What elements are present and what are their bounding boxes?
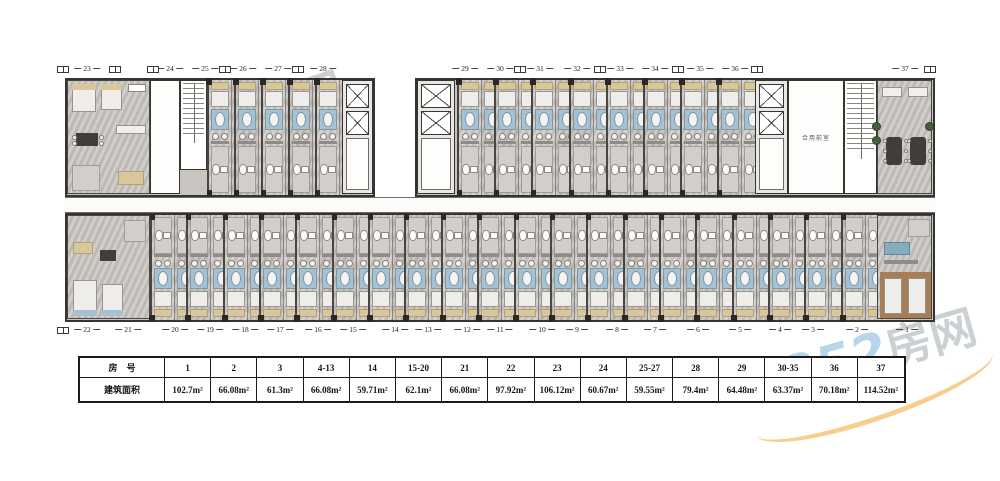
tick-dash [659,329,666,330]
sink-icon [454,232,462,239]
chair-icon [700,260,707,267]
corridor-pier [368,214,373,220]
bed-pillow [627,309,645,317]
chair-icon [320,133,327,140]
desk-table [408,254,426,257]
wall-pier [642,78,648,85]
tub-icon [703,271,713,286]
chair-icon [664,260,671,267]
unit-half [443,215,465,320]
tick-dash [181,329,188,330]
bathroom [647,146,665,193]
desk-table [554,254,572,257]
bath-mat [535,109,553,130]
toilet-icon [685,164,693,175]
bed [721,91,739,107]
tick-dash [471,68,478,69]
chair-icon [722,133,729,140]
bathroom [461,146,479,193]
shared-lobby-room: 合用前室 [788,80,844,194]
tub-icon [667,271,677,286]
bed-pillow [445,309,463,317]
desk-table [684,141,702,144]
unit-half [261,215,283,320]
bed [445,291,463,307]
chair-icon [221,133,228,140]
unit-number: 29 [461,65,469,73]
tub-icon [651,112,661,127]
apartment-unit [680,80,717,195]
bed-pillow [610,82,628,90]
bed [627,291,645,307]
apartment-unit [804,215,840,320]
unit-number: 2 [855,326,859,334]
unit-number: 16 [314,326,322,334]
bed-pillow [590,309,608,317]
tick-dash [267,329,274,330]
desk-chairs [445,259,463,267]
chair-icon [505,260,512,267]
toilet-icon [264,230,272,241]
apartment-unit [531,80,568,195]
apartment-unit [717,80,754,195]
desk-table [263,254,281,257]
apartment-unit-22 [67,215,150,319]
unit-half [571,80,593,195]
bath-mat [498,109,516,130]
desk-chairs [408,259,426,267]
apartment-unit [234,80,261,195]
meeting-table [886,137,902,165]
bathroom [684,146,702,193]
bed-pillow [319,82,337,90]
bath-mat [736,268,754,289]
bath-mat [663,268,681,289]
stair-divider [861,83,862,159]
wall-pier [294,315,300,322]
chair-icon [648,133,655,140]
bed [554,291,572,307]
tick-dash [564,68,571,69]
unit-half [188,215,210,320]
tick-dash [606,329,613,330]
toilet-icon [542,230,550,241]
bathroom [535,146,553,193]
apartment-unit [315,80,342,195]
bathroom [573,146,591,193]
desk-chairs [263,259,281,267]
toilet-icon [614,230,622,241]
unit-number-label: 16 [305,326,331,334]
tick-dash [473,329,480,330]
bathroom [627,217,645,254]
bed [299,291,317,307]
desk-chairs [154,259,172,267]
elevator-shaft-icon [421,111,451,135]
unit-half [406,215,428,320]
tub-icon [376,271,386,286]
desk-table [336,254,354,257]
toilet-icon [522,164,530,175]
chair-icon [574,133,581,140]
tick-dash [583,68,590,69]
bed [319,91,337,107]
tick-dash [529,329,536,330]
corridor-pier [441,214,446,220]
unit-number-label: 2 [846,326,868,334]
toilet-icon [228,230,236,241]
sink-icon [817,232,825,239]
desk-table [627,254,645,257]
sofa [118,171,144,185]
bathroom [445,217,463,254]
desk-table [845,254,863,257]
toilet-icon [723,230,731,241]
bed [610,91,628,107]
sink-icon [619,166,627,173]
corridor-pier [186,214,191,220]
bed-pillow [535,82,553,90]
bathroom [319,146,337,193]
corridor [65,197,935,213]
tick-dash [861,329,868,330]
toilet-icon [320,164,328,175]
chair-icon [723,260,730,267]
chair-icon [491,260,498,267]
bathroom [299,217,317,254]
tv-cabinet [884,260,918,264]
bed-pillow [663,309,681,317]
sink-icon [247,166,255,173]
sink-icon [236,232,244,239]
tub-icon [485,271,495,286]
bed-pillow [227,309,245,317]
tub-icon [594,271,604,286]
chair-icon [519,260,526,267]
chair-icon [99,135,104,140]
sink-icon [308,232,316,239]
tick-dash [744,329,751,330]
unit-half [734,215,756,320]
bath-mat [238,109,256,130]
corridor-pier [261,190,266,196]
chair-icon [883,159,887,163]
elevator-shaft-icon [346,111,369,135]
unit-number-label: 8 [606,326,628,334]
corridor-pier [841,214,846,220]
tick-dash [251,329,258,330]
bed-pillow [190,309,208,317]
sink-icon [693,166,701,173]
unit-number-label: 36 [722,65,748,73]
bath-mat [154,268,172,289]
tick-dash [265,68,272,69]
desk-table [573,141,591,144]
tick-dash [702,329,709,330]
tick-dash [359,329,366,330]
unit-number: 21 [124,326,132,334]
sofa [884,242,910,255]
apartment-unit [207,80,234,195]
desk-table [211,141,229,144]
corridor-pier [732,214,737,220]
area-value-cell: 60.67m² [581,378,627,401]
unit-number: 19 [206,326,214,334]
unit-number-label: 13 [415,326,441,334]
bathroom [124,220,146,242]
chair-icon [508,133,515,140]
toilet-icon [634,164,642,175]
desk-table [227,254,245,257]
bath-mat [518,268,536,289]
room-number-cell: 23 [535,358,581,378]
sink-icon [599,232,607,239]
desk-chairs [211,132,229,140]
tick-dash [911,68,918,69]
unit-half [552,215,574,320]
elevator-core [755,80,788,194]
chair-icon [251,260,258,267]
bathroom [610,146,628,193]
bath-mat [227,268,245,289]
bed [535,91,553,107]
elevator-core [417,80,455,194]
chair-icon [773,260,780,267]
unit-number-label: 31 [527,65,553,73]
window-marker-icon [514,66,526,73]
unit-half [236,80,258,195]
desk-chairs [627,259,645,267]
bed-pillow [684,82,702,90]
chair-icon [611,133,618,140]
tick-dash [401,329,408,330]
toilet-icon [239,164,247,175]
bed-pillow [154,309,172,317]
toilet-icon [664,230,672,241]
unit-number: 37 [901,65,909,73]
unit-number-label: 24 [157,65,183,73]
toilet-icon [687,230,695,241]
unit-half [843,215,865,320]
desk-chairs [772,259,790,267]
window-marker-icon [924,66,936,73]
chair-icon [228,260,235,267]
bath-mat [699,268,717,289]
unit-number: 5 [738,326,742,334]
tick-dash [216,329,223,330]
sink-icon [854,232,862,239]
apartment-unit [223,215,259,320]
bed-pillow [211,82,229,90]
bed-pillow [481,309,499,317]
chair-icon [731,133,738,140]
bathroom [808,217,826,254]
tick-dash [162,329,169,330]
sink-icon [470,166,478,173]
unit-half [719,80,741,195]
bathroom [372,217,390,254]
desk-chairs [535,132,553,140]
unit-number: 7 [653,326,657,334]
unit-number-label: 14 [382,326,408,334]
unit-number: 27 [274,65,282,73]
corridor-pier [717,190,722,196]
chair-icon [651,260,658,267]
sink-icon [527,232,535,239]
bed [461,91,479,107]
toilet-icon [300,230,308,241]
bed [154,291,172,307]
chair-icon [266,133,273,140]
bathroom [408,217,426,254]
bath-mat [573,109,591,130]
chair-icon [418,260,425,267]
sink-icon [656,166,664,173]
room-number-cell: 2 [211,358,257,378]
unit-number: 22 [83,326,91,334]
unit-half [152,215,174,320]
tick-dash [607,68,614,69]
bathroom [238,146,256,193]
bed-pillow [292,82,310,90]
bed [336,291,354,307]
toilet-icon [591,230,599,241]
bathroom [154,217,172,254]
toilet-icon [191,230,199,241]
chair-icon [564,260,571,267]
wall-pier [568,78,574,85]
tub-icon [465,112,475,127]
chair-icon [200,260,207,267]
chair-icon [536,133,543,140]
dining-table [76,133,98,146]
elevator-lobby [346,138,369,190]
room-number-cell: 37 [858,358,904,378]
unit-number: 12 [463,326,471,334]
area-value-cell: 59.71m² [350,378,396,401]
toilet-icon [178,230,186,241]
toilet-icon [745,164,753,175]
bath-mat [845,268,863,289]
toilet-icon [212,164,220,175]
bed-pillow [238,82,256,90]
area-value-cell: 66.08m² [211,378,257,401]
bed-pillow [518,309,536,317]
corridor-pier [234,190,239,196]
bed [292,91,310,107]
corridor-pier [315,190,320,196]
bed-pillow [736,309,754,317]
wall-pier [440,315,446,322]
bed-pillow [263,309,281,317]
unit-number: 10 [538,326,546,334]
desk-chairs [808,259,826,267]
bathroom [72,165,100,191]
tick-dash [644,329,651,330]
desk-chairs [518,259,536,267]
bed [808,291,826,307]
desk-table [647,141,665,144]
desk-table [699,254,717,257]
bathroom [211,146,229,193]
apartment-unit [643,80,680,195]
desk-chairs [590,259,608,267]
toilet-icon [578,230,586,241]
unit-number: 32 [573,65,581,73]
wall-pier [767,315,773,322]
window-marker-icon [672,66,684,73]
tub-icon [502,112,512,127]
wall-pier [287,78,293,85]
tick-dash [487,329,494,330]
wall-pier [493,78,499,85]
area-value-cell: 114.52m² [858,378,904,401]
tick-dash [729,329,736,330]
tub-icon [740,271,750,286]
tick-dash [548,329,555,330]
toilet-icon [469,230,477,241]
unit-number: 3 [811,326,815,334]
tick-dash [324,329,331,330]
bed [481,291,499,307]
desk-chairs [292,132,310,140]
wall-pier [456,78,462,85]
bath-mat [808,268,826,289]
chair-icon [818,260,825,267]
bed [265,91,283,107]
window-marker-icon [109,66,121,73]
elevator-shaft-icon [759,111,784,135]
unit-number: 26 [239,65,247,73]
chair-icon [471,133,478,140]
unit-half [625,215,647,320]
unit-half [661,215,683,320]
chair-icon [591,260,598,267]
chair-icon [907,139,911,143]
tick-dash [817,329,824,330]
unit-number-label: 34 [642,65,668,73]
unit-number: 17 [276,326,284,334]
chair-icon [597,133,604,140]
wall-pier [367,315,373,322]
tick-dash [74,68,81,69]
bed [736,291,754,307]
window-marker-icon [594,66,606,73]
chair-icon [809,260,816,267]
unit-half [459,80,481,195]
dining-table [100,250,116,261]
tub-icon [267,271,277,286]
unit-number: 11 [496,326,503,334]
unit-half [370,215,392,320]
toilet-icon [773,230,781,241]
tub-icon [242,112,252,127]
bath-mat [647,109,665,130]
desk-table [238,141,256,144]
bed [908,278,926,314]
chair-icon [928,139,932,143]
chair-icon [796,260,803,267]
wall-pier [222,315,228,322]
chair-icon [155,260,162,267]
bed-pillow [73,310,97,316]
tub-icon [449,271,459,286]
toilet-icon [559,164,567,175]
sink-icon [301,166,309,173]
unit-number-label: 17 [267,326,293,334]
tick-dash [230,68,237,69]
unit-half [225,215,247,320]
